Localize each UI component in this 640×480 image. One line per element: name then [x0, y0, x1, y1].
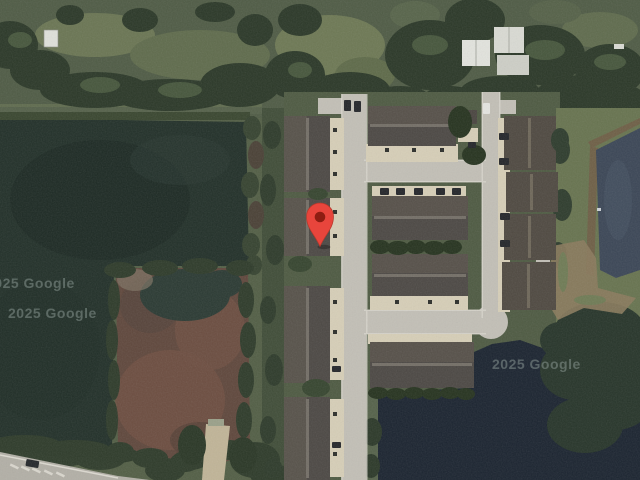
- pin-dot: [315, 212, 326, 223]
- satellite-map-canvas[interactable]: 2025 Google 2025 Google 2025 Google: [0, 0, 640, 480]
- watermark-2: 2025 Google: [8, 305, 97, 321]
- watermark-3: 2025 Google: [492, 356, 581, 372]
- watermark-1: 2025 Google: [0, 275, 75, 291]
- map-viewport[interactable]: 2025 Google 2025 Google 2025 Google: [0, 0, 640, 480]
